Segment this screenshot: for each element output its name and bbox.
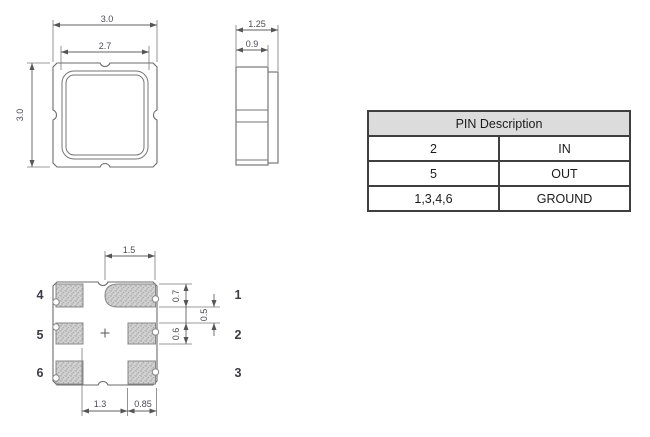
pin-cell: 2: [368, 136, 499, 161]
dim-top-lid-width: 2.7: [99, 41, 112, 51]
pad-5: [56, 323, 83, 344]
pin-label-4: 4: [37, 288, 44, 302]
pin-cell: 5: [368, 161, 499, 186]
dim-top-outer-height: 3.0: [15, 109, 25, 122]
datasheet-page: 3.0 2.7 3.0: [0, 0, 650, 437]
dim-side-pad-width: 0.85: [134, 399, 152, 409]
pad-6: [56, 361, 83, 384]
pad-1: [105, 284, 156, 307]
bottom-view: 4 5 6 1 2 3 1.5 0.7 0.6: [37, 245, 242, 416]
pin-label-2: 2: [235, 328, 242, 342]
pin-label-5: 5: [37, 328, 44, 342]
top-view: 3.0 2.7 3.0: [15, 14, 157, 167]
pin-label-3: 3: [235, 366, 242, 380]
castellation-notch: [152, 369, 158, 375]
desc-cell: IN: [499, 136, 630, 161]
package-drawings: 3.0 2.7 3.0: [0, 0, 650, 437]
dim-pad1-width: 1.5: [123, 245, 136, 255]
dim-pad-gap-horizontal: 1.3: [94, 399, 107, 409]
table-row: 2 IN: [368, 136, 630, 161]
castellation-notch: [53, 375, 59, 381]
table-row: 1,3,4,6 GROUND: [368, 186, 630, 211]
castellation-notch: [53, 324, 59, 330]
pin-table-header: PIN Description: [368, 111, 630, 136]
castellation-notch: [152, 329, 158, 335]
side-view: 1.25 0.9: [236, 19, 278, 165]
dim-side-overall-width: 1.25: [248, 19, 266, 29]
dim-pad-gap-vertical: 0.5: [199, 309, 209, 322]
pin-label-1: 1: [235, 288, 242, 302]
pin-description-table: PIN Description 2 IN 5 OUT 1,3,4,6 GROUN…: [367, 110, 631, 212]
pin-cell: 1,3,4,6: [368, 186, 499, 211]
top-view-body-outline: [53, 63, 157, 167]
castellation-notch: [53, 299, 59, 305]
pin-label-6: 6: [37, 366, 44, 380]
desc-cell: GROUND: [499, 186, 630, 211]
pad-2: [128, 323, 156, 344]
dim-pad2-height: 0.6: [171, 328, 181, 341]
dim-side-body-width: 0.9: [246, 39, 259, 49]
dim-top-outer-width: 3.0: [101, 14, 114, 24]
dim-pad1-height: 0.7: [171, 290, 181, 303]
table-row: 5 OUT: [368, 161, 630, 186]
side-view-body: [236, 67, 268, 165]
pad-3: [128, 361, 156, 384]
pad-4: [56, 284, 83, 307]
desc-cell: OUT: [499, 161, 630, 186]
castellation-notch: [152, 296, 158, 302]
